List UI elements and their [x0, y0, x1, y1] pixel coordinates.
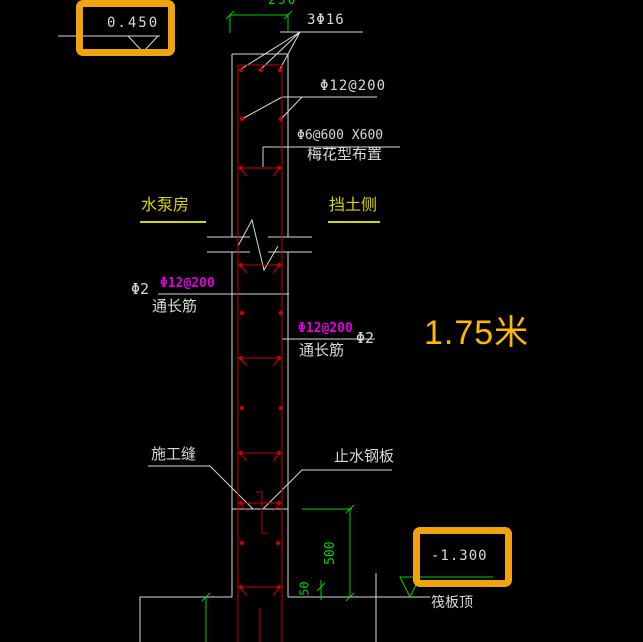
waterstop-plate-label: 止水钢板	[334, 448, 394, 465]
bottom-elevation-caption: 筏板顶	[431, 596, 473, 611]
left-side-label: 水泵房	[141, 196, 189, 214]
left-bar-mark: Φ2	[131, 281, 149, 298]
right-bar-spec: Φ12@200	[298, 322, 353, 336]
highlight-box-top-elevation	[76, 0, 175, 56]
tie-bars-pattern-label: 梅花型布置	[307, 146, 382, 163]
construction-joint-label: 施工缝	[151, 446, 196, 463]
cover-dimension: 50	[298, 575, 311, 603]
wall-width-dimension: 250	[268, 0, 297, 8]
wall-outline	[58, 32, 430, 642]
tie-bars-spec-label: Φ6@600 X600	[297, 129, 383, 143]
right-side-label: 挡土侧	[329, 196, 377, 214]
base-height-dimension: 500	[324, 533, 338, 573]
right-bar-mark: Φ2	[356, 330, 374, 347]
length-annotation: 1.75米	[424, 305, 529, 354]
cad-drawing-canvas[interactable]: 250 0.450 3Φ16 Φ12@200 Φ6@600 X600 梅花型布置…	[0, 0, 643, 642]
rebar-lines	[238, 65, 282, 642]
top-bars-label: 3Φ16	[307, 13, 345, 28]
rebar-dots	[239, 68, 283, 589]
highlight-box-bottom-elevation	[413, 527, 512, 587]
left-bar-spec: Φ12@200	[160, 277, 215, 291]
horizontal-bars-label: Φ12@200	[320, 79, 386, 94]
left-bar-note: 通长筋	[152, 298, 197, 315]
right-bar-note: 通长筋	[299, 342, 344, 359]
